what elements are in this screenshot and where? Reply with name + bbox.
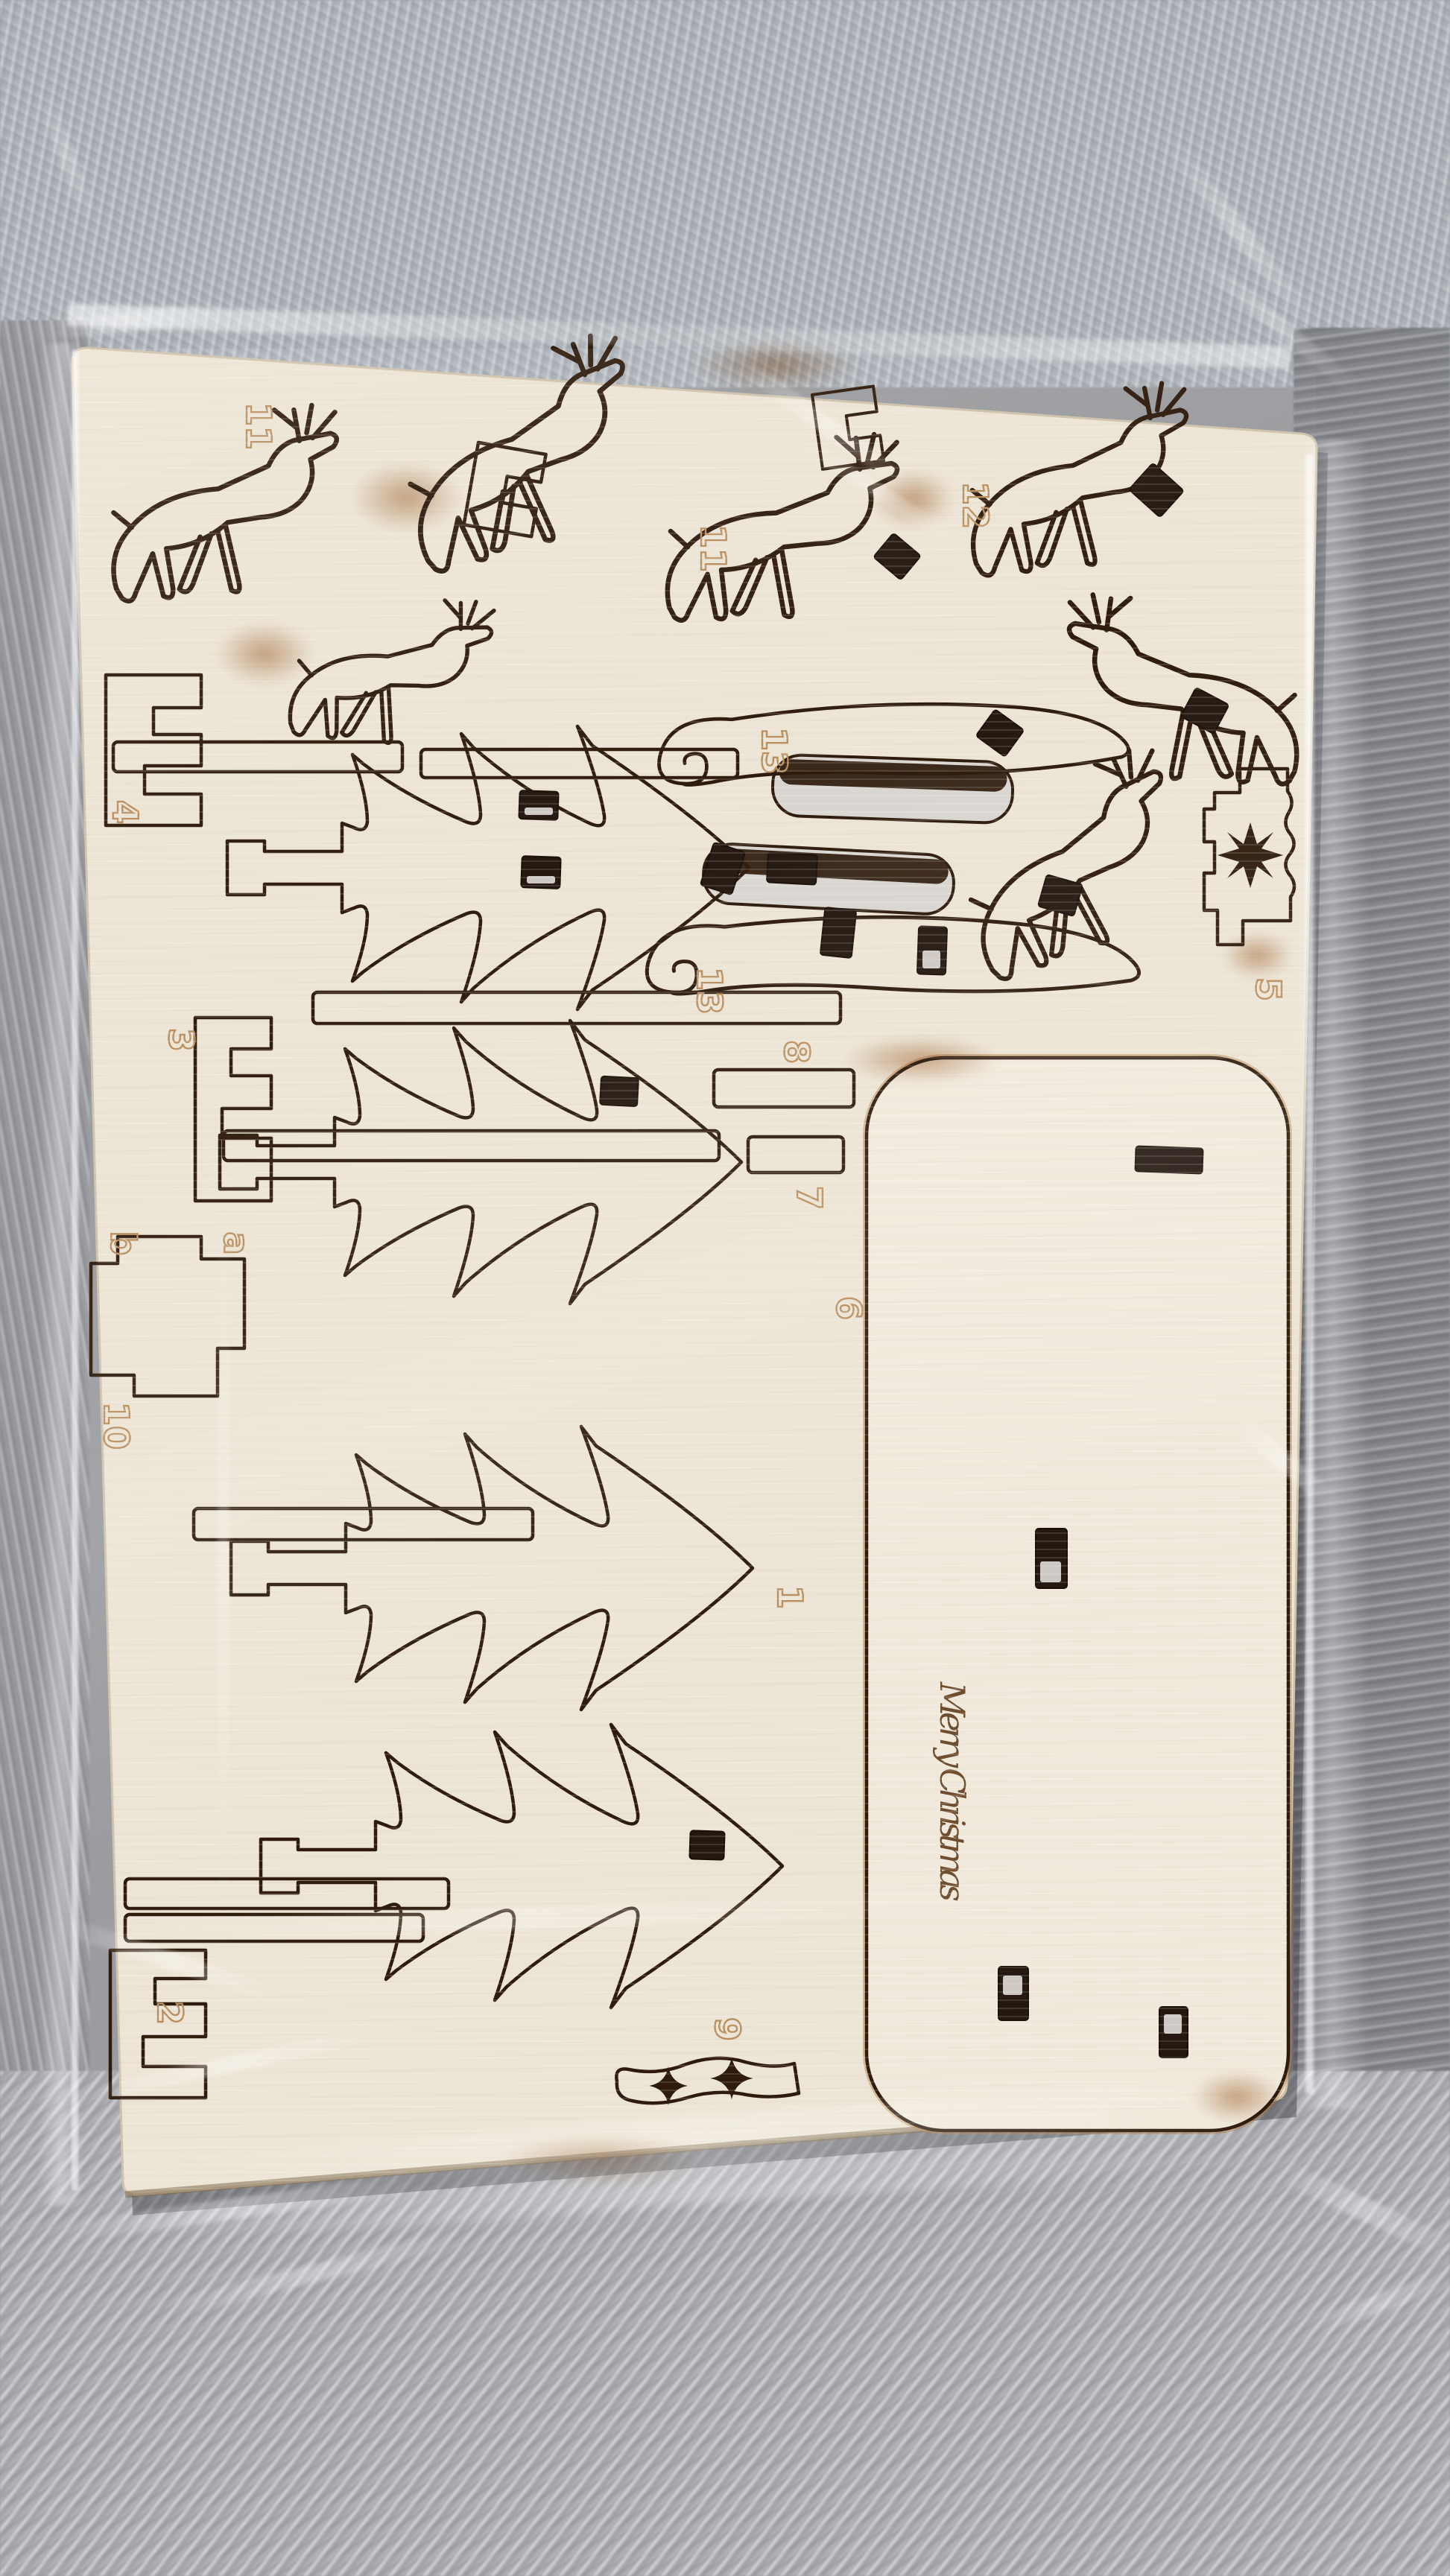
photo-canvas: { "scene": { "description": "Laser-cut p…: [0, 0, 1450, 2576]
plastic-wrap-fold: [218, 1207, 229, 1914]
plastic-wrap-right-line: [1305, 454, 1314, 2093]
plastic-wrap-left-line: [72, 350, 78, 2190]
